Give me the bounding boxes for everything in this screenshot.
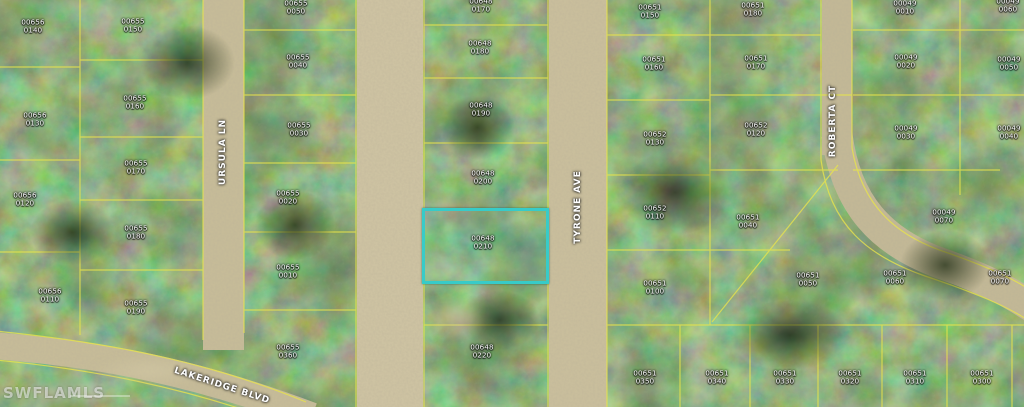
parcel-label: 006510310 bbox=[903, 371, 926, 386]
mls-watermark: SWFLAMLS bbox=[3, 384, 105, 402]
street-label-roberta-ct: ROBERTA CT bbox=[828, 85, 838, 157]
parcel-label: 006480210 bbox=[471, 236, 494, 251]
parcel-label: 006520110 bbox=[643, 206, 666, 221]
parcel-label: 006510160 bbox=[642, 57, 665, 72]
street-label-tyrone-ave: TYRONE AVE bbox=[573, 170, 583, 244]
parcel-label: 006510050 bbox=[796, 273, 819, 288]
parcel-label: 006510040 bbox=[736, 215, 759, 230]
parcel-label: 006510330 bbox=[773, 371, 796, 386]
parcel-label: 000490020 bbox=[894, 55, 917, 70]
parcel-label: 006550050 bbox=[284, 1, 307, 16]
aerial-parcel-map: 0065601400065601300065601200065601100065… bbox=[0, 0, 1024, 407]
parcel-label: 006510320 bbox=[838, 371, 861, 386]
parcel-label: 006510350 bbox=[633, 371, 656, 386]
parcel-label: 000490010 bbox=[893, 1, 916, 16]
road-dirt bbox=[357, 0, 423, 407]
parcel-label: 006550190 bbox=[124, 301, 147, 316]
parcel-label: 006510340 bbox=[705, 371, 728, 386]
parcel-label: 006510070 bbox=[988, 271, 1011, 286]
parcel-label: 006510300 bbox=[970, 371, 993, 386]
parcel-label: 006480180 bbox=[468, 41, 491, 56]
parcel-label: 006550150 bbox=[121, 19, 144, 34]
parcel-label: 006550170 bbox=[124, 161, 147, 176]
parcel-label: 006550360 bbox=[276, 345, 299, 360]
parcel-label: 006510180 bbox=[741, 3, 764, 18]
parcel-label: 006550040 bbox=[286, 55, 309, 70]
parcel-label: 006510170 bbox=[744, 56, 767, 71]
parcel-label: 006550160 bbox=[123, 96, 146, 111]
parcel-label: 006520130 bbox=[643, 132, 666, 147]
parcel-label: 006560140 bbox=[21, 20, 44, 35]
parcel-label: 006560130 bbox=[23, 113, 46, 128]
parcel-label: 006550180 bbox=[124, 226, 147, 241]
parcel-label: 006550030 bbox=[287, 123, 310, 138]
parcel-label: 000490070 bbox=[932, 210, 955, 225]
parcel-label: 006510060 bbox=[883, 271, 906, 286]
mls-watermark-line bbox=[70, 395, 130, 397]
parcel-label: 006480170 bbox=[469, 0, 492, 14]
parcel-label: 006560120 bbox=[13, 193, 36, 208]
parcel-label: 006510100 bbox=[643, 281, 666, 296]
parcel-label: 000490050 bbox=[997, 57, 1020, 72]
parcel-label: 006550020 bbox=[276, 191, 299, 206]
street-label-ursula-ln: URSULA LN bbox=[218, 119, 228, 185]
parcel-label: 000490040 bbox=[997, 126, 1020, 141]
parcel-label: 000490060 bbox=[996, 0, 1019, 14]
parcel-label: 000490030 bbox=[894, 126, 917, 141]
map-graphics bbox=[0, 0, 1024, 407]
parcel-label: 006520120 bbox=[744, 123, 767, 138]
parcel-label: 006560110 bbox=[38, 289, 61, 304]
parcel-label: 006480190 bbox=[469, 103, 492, 118]
parcel-label: 006550010 bbox=[276, 265, 299, 280]
parcel-label: 006510150 bbox=[638, 5, 661, 20]
parcel-label: 006480200 bbox=[471, 171, 494, 186]
parcel-label: 006480220 bbox=[470, 345, 493, 360]
